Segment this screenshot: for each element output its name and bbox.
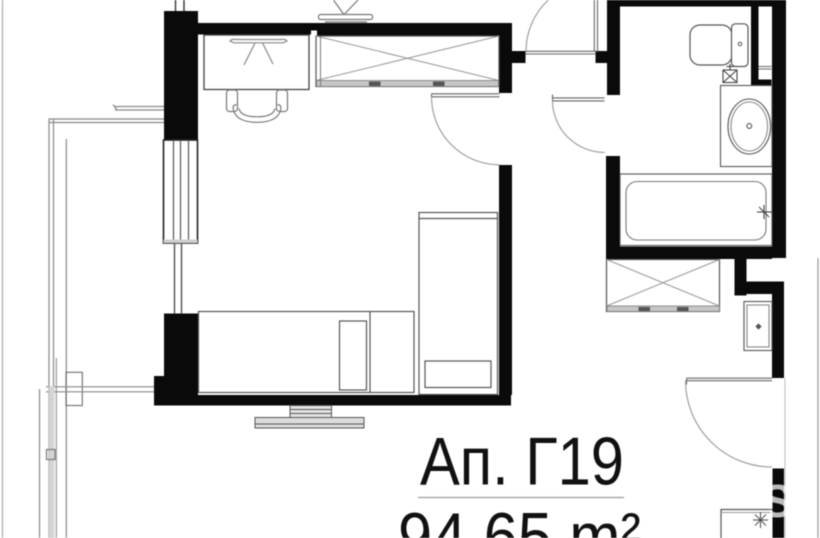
svg-text:94.65 m²: 94.65 m² [398,499,641,538]
svg-text:Ап. Г19: Ап. Г19 [420,424,624,500]
